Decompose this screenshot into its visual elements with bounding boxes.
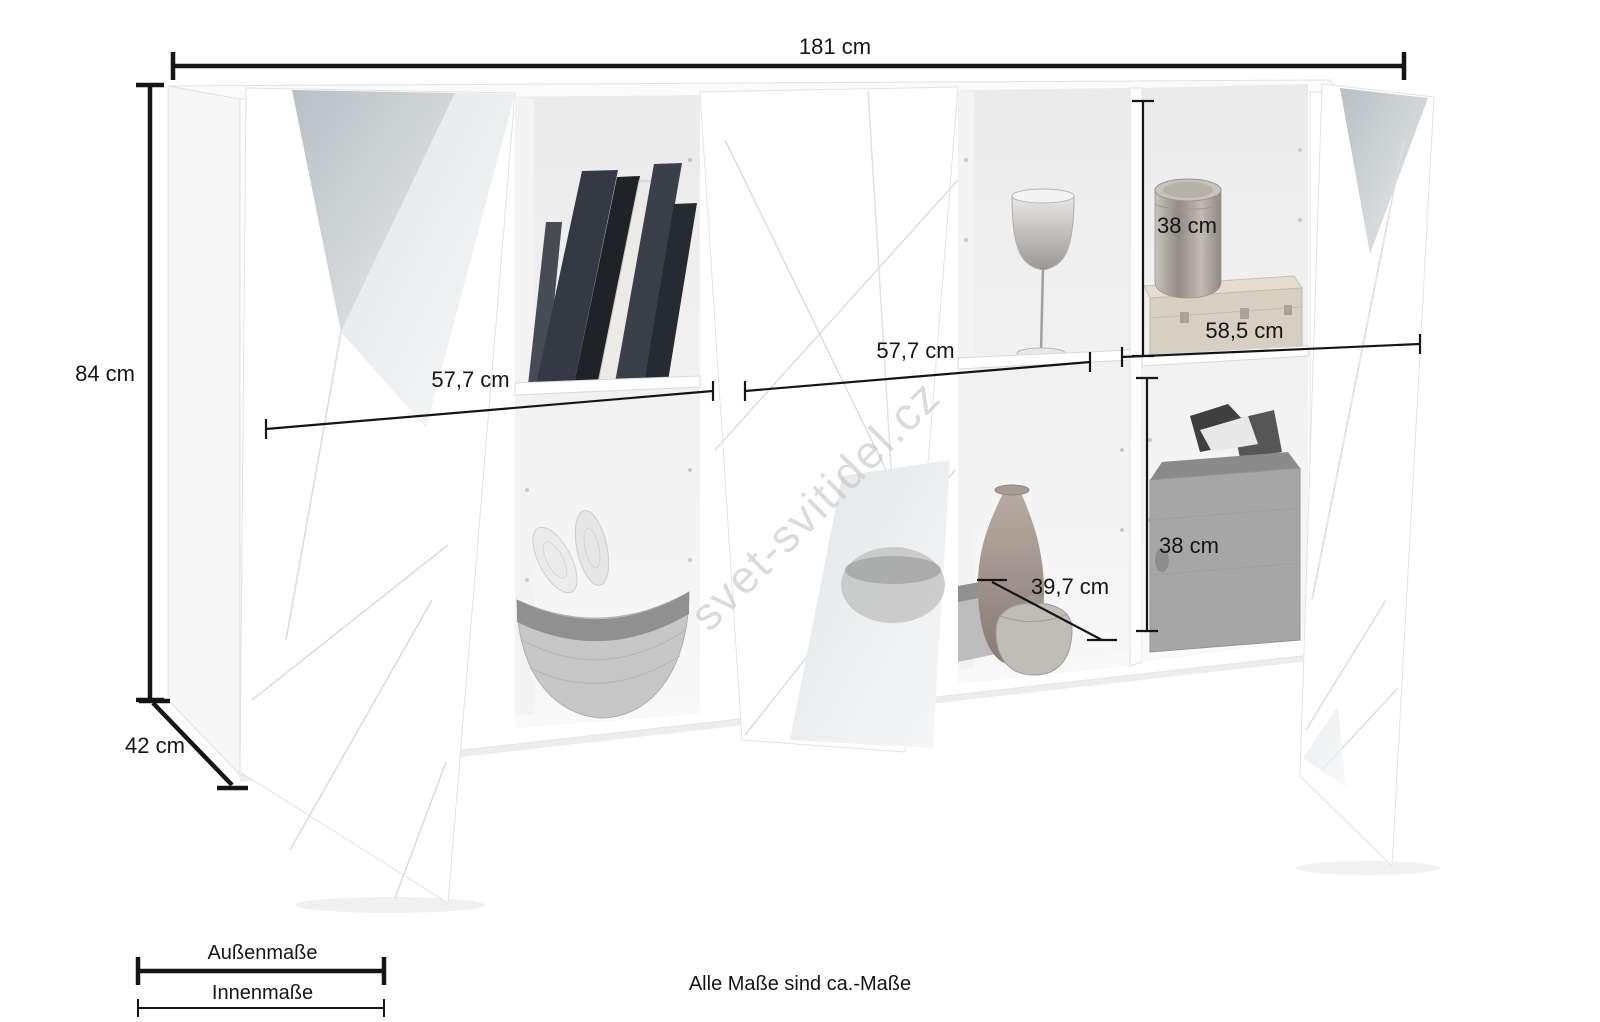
footnote: Alle Maße sind ca.-Maße bbox=[640, 972, 960, 996]
dim-label-inner-depth: 39,7 cm bbox=[995, 574, 1145, 600]
dim-label-inner-width-right: 58,5 cm bbox=[1162, 318, 1327, 344]
legend-inner-label: Innenmaße bbox=[140, 981, 385, 1005]
dim-label-inner-height-lower: 38 cm bbox=[1159, 533, 1219, 559]
outer-dimension-lines bbox=[136, 52, 1404, 788]
product-dimension-diagram: svet-svitidel.cz bbox=[0, 0, 1600, 1022]
dim-label-total-height: 84 cm bbox=[55, 361, 135, 387]
dim-label-total-width: 181 cm bbox=[770, 34, 900, 60]
dim-label-inner-width-middle: 57,7 cm bbox=[833, 338, 998, 364]
legend-outer-label: Außenmaße bbox=[140, 941, 385, 965]
dim-label-total-depth: 42 cm bbox=[110, 733, 200, 759]
dimension-lines bbox=[0, 0, 1600, 1022]
dim-label-inner-width-left: 57,7 cm bbox=[388, 367, 553, 393]
dim-label-inner-height-upper: 38 cm bbox=[1157, 213, 1217, 239]
